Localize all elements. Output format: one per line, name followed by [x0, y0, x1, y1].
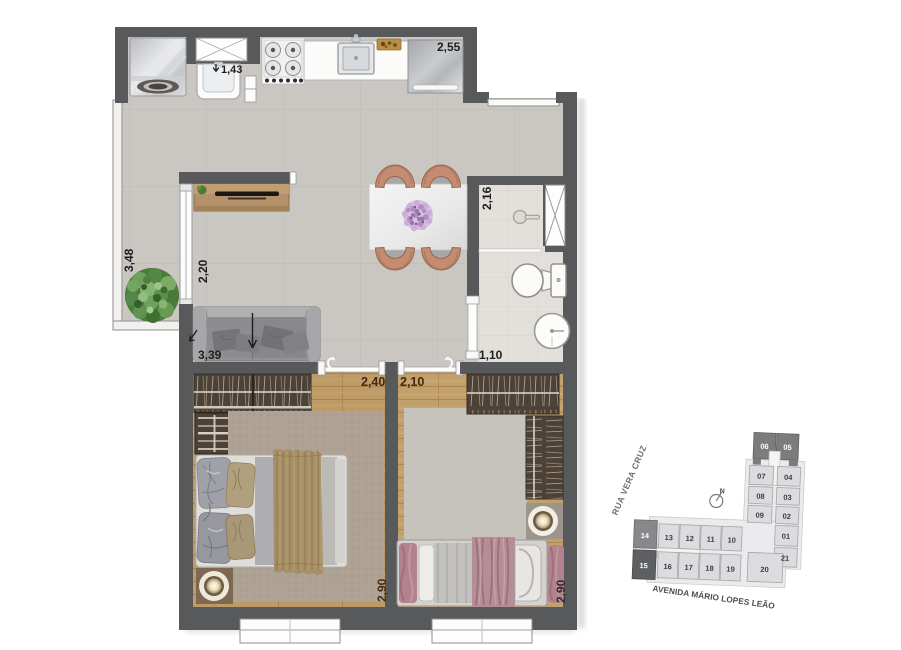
svg-text:12: 12 — [685, 534, 694, 543]
svg-text:3,48: 3,48 — [122, 248, 136, 272]
svg-text:10: 10 — [727, 535, 736, 544]
svg-text:21: 21 — [781, 554, 790, 563]
svg-text:1,43: 1,43 — [221, 64, 242, 76]
svg-text:14: 14 — [640, 531, 650, 540]
svg-text:19: 19 — [726, 564, 735, 573]
svg-text:2,90: 2,90 — [375, 578, 389, 602]
svg-text:01: 01 — [782, 532, 791, 541]
svg-text:3,39: 3,39 — [198, 348, 222, 362]
svg-text:05: 05 — [783, 443, 792, 452]
svg-text:18: 18 — [705, 564, 714, 573]
svg-text:11: 11 — [707, 535, 715, 544]
svg-text:03: 03 — [783, 493, 792, 502]
svg-text:06: 06 — [760, 442, 769, 451]
svg-text:2,40: 2,40 — [361, 375, 385, 389]
svg-text:1,10: 1,10 — [479, 348, 503, 362]
svg-text:09: 09 — [755, 511, 764, 520]
svg-text:15: 15 — [639, 561, 648, 570]
svg-text:2,10: 2,10 — [400, 375, 424, 389]
svg-text:2,20: 2,20 — [196, 259, 210, 283]
svg-text:07: 07 — [757, 472, 766, 481]
svg-text:17: 17 — [684, 563, 693, 572]
svg-text:02: 02 — [782, 512, 791, 521]
svg-text:04: 04 — [784, 473, 794, 482]
svg-text:08: 08 — [756, 492, 765, 501]
svg-text:20: 20 — [760, 565, 769, 574]
svg-text:2,55: 2,55 — [437, 40, 461, 54]
svg-text:13: 13 — [664, 533, 673, 542]
svg-text:2,90: 2,90 — [554, 579, 568, 603]
svg-text:2,16: 2,16 — [480, 186, 494, 210]
svg-text:N: N — [720, 488, 725, 495]
svg-text:16: 16 — [663, 562, 672, 571]
